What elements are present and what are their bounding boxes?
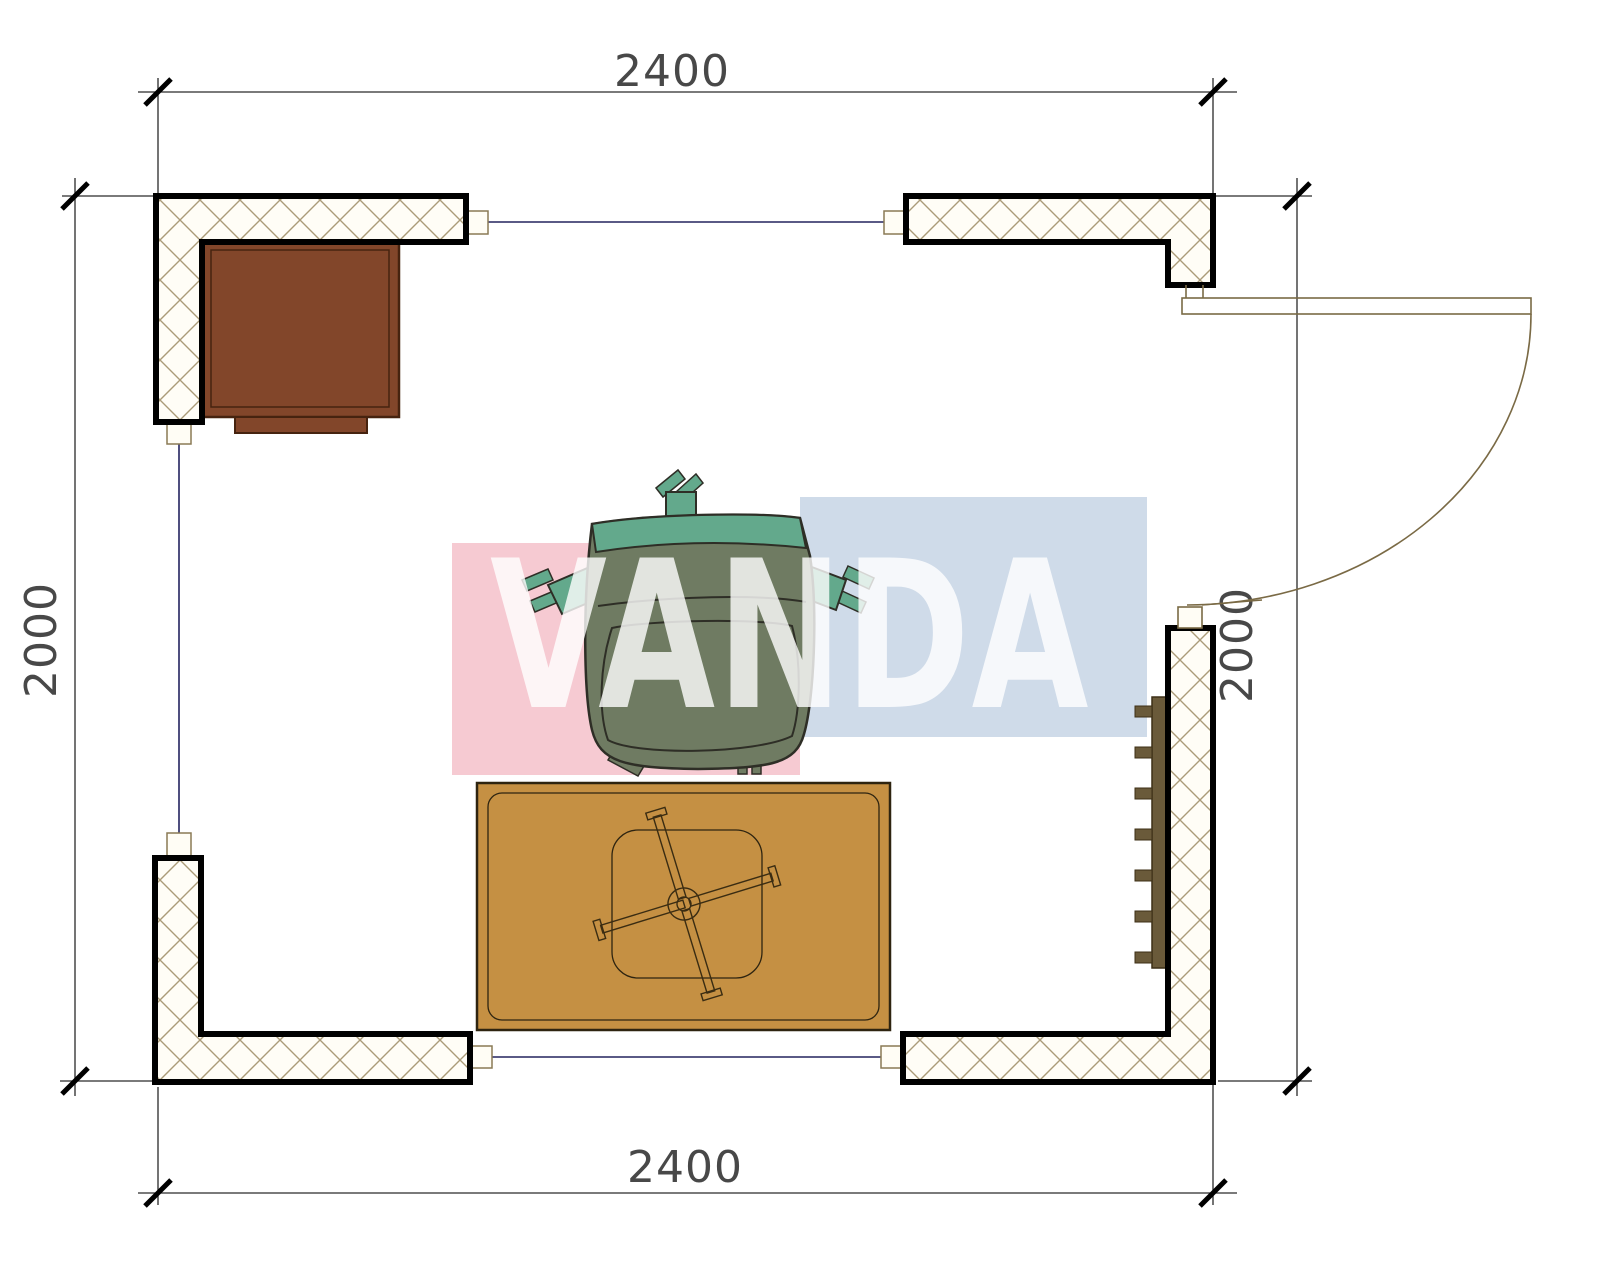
- radiator: [1135, 697, 1170, 968]
- connector-square: [466, 211, 488, 234]
- connector-square: [167, 833, 191, 856]
- dimension-label-right: 2000: [1212, 587, 1263, 703]
- radiator-fin: [1135, 870, 1152, 881]
- cabinet-body: [201, 240, 399, 417]
- door-swing-arc: [1187, 314, 1531, 605]
- floor-plan-drawing: 2400 2400 2000 2000: [0, 0, 1600, 1280]
- table-top: [477, 783, 890, 1030]
- table: [477, 782, 890, 1030]
- radiator-fin: [1135, 788, 1152, 799]
- radiator-fin: [1135, 706, 1152, 717]
- dimension-label-top: 2400: [614, 46, 730, 97]
- radiator-fin: [1135, 747, 1152, 758]
- cabinet: [201, 240, 399, 433]
- connector-square: [470, 1046, 492, 1068]
- radiator-fin: [1135, 829, 1152, 840]
- connector-square: [884, 211, 906, 234]
- radiator-fin: [1135, 911, 1152, 922]
- radiator-fin: [1135, 952, 1152, 963]
- wall-top-right: [906, 196, 1213, 285]
- dimension-label-left: 2000: [16, 582, 67, 698]
- door-leaf: [1182, 298, 1531, 314]
- wall-bottom-left: [155, 858, 470, 1082]
- watermark-text: VANDA: [490, 518, 1090, 756]
- connector-square: [881, 1046, 903, 1068]
- dimension-label-bottom: 2400: [627, 1142, 743, 1193]
- door: [1178, 285, 1531, 628]
- cabinet-handle: [235, 417, 367, 433]
- dimension-left: [60, 178, 153, 1096]
- floor-plan-canvas: 2400 2400 2000 2000: [0, 0, 1600, 1280]
- door-jamb: [1178, 607, 1202, 628]
